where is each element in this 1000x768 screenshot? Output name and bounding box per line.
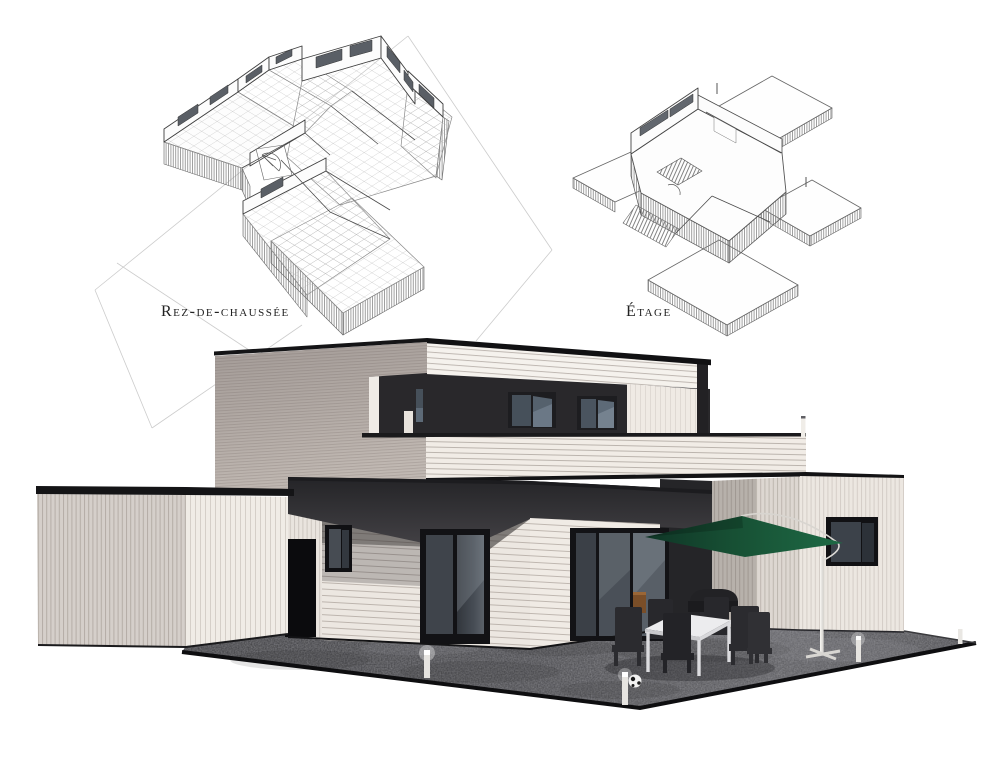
svg-text:Rez-de-chaussée: Rez-de-chaussée [161,303,290,320]
svg-text:Étage: Étage [626,301,672,320]
